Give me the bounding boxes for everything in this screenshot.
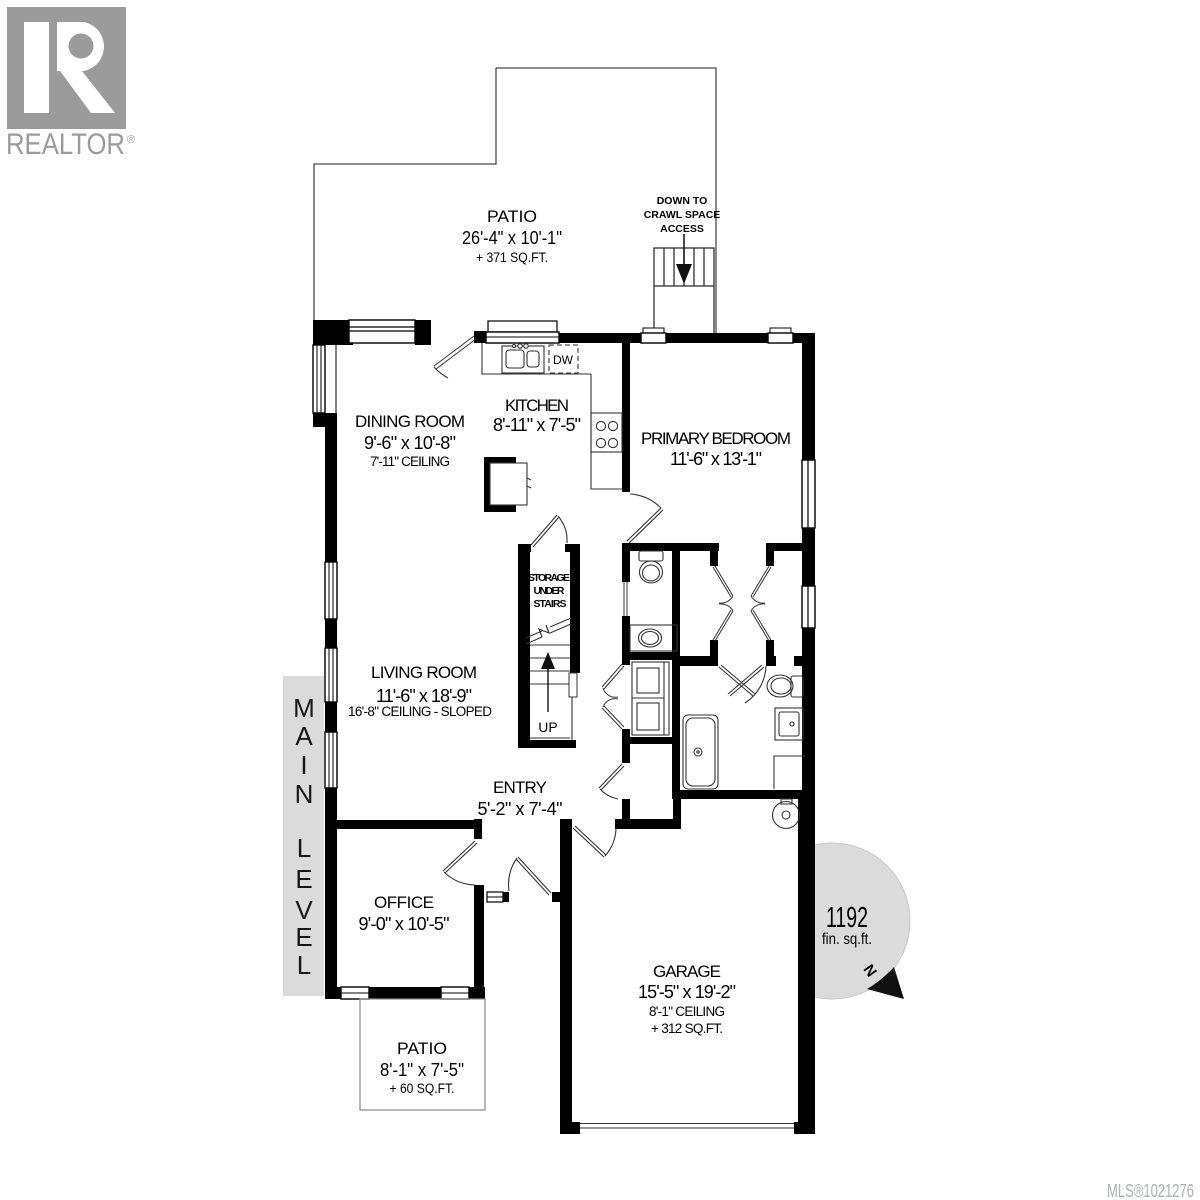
svg-text:DINING ROOM: DINING ROOM: [355, 412, 465, 431]
svg-text:11'-6" x 13'-1": 11'-6" x 13'-1": [670, 449, 762, 469]
svg-text:®: ®: [127, 134, 135, 146]
svg-text:PATIO: PATIO: [397, 1039, 447, 1058]
svg-text:+ 60 SQ.FT.: + 60 SQ.FT.: [390, 1081, 455, 1096]
svg-text:A: A: [295, 721, 313, 751]
svg-text:L: L: [297, 833, 311, 863]
svg-text:UP: UP: [538, 719, 557, 735]
svg-text:M: M: [293, 693, 315, 723]
svg-text:V: V: [295, 895, 313, 925]
svg-text:GARAGE: GARAGE: [653, 962, 721, 981]
svg-text:7'-11" CEILING: 7'-11" CEILING: [370, 454, 450, 469]
svg-text:CRAWL SPACE: CRAWL SPACE: [644, 209, 721, 221]
svg-text:9'-0" x 10'-5": 9'-0" x 10'-5": [359, 914, 450, 934]
svg-text:8'-1" x 7'-5": 8'-1" x 7'-5": [380, 1060, 464, 1080]
svg-text:DW: DW: [553, 353, 574, 367]
svg-text:DOWN TO: DOWN TO: [657, 195, 708, 207]
svg-text:LIVING ROOM: LIVING ROOM: [371, 663, 477, 682]
svg-text:STAIRS: STAIRS: [534, 598, 567, 610]
svg-text:26'-4" x 10'-1": 26'-4" x 10'-1": [462, 228, 562, 248]
svg-text:fin. sq.ft.: fin. sq.ft.: [822, 931, 872, 948]
svg-text:PRIMARY BEDROOM: PRIMARY BEDROOM: [641, 429, 791, 448]
svg-text:REALTOR: REALTOR: [6, 128, 125, 161]
svg-text:8'-1" CEILING: 8'-1" CEILING: [649, 1004, 725, 1019]
svg-text:ENTRY: ENTRY: [493, 778, 547, 797]
svg-text:KITCHEN: KITCHEN: [505, 396, 569, 415]
svg-text:UNDER: UNDER: [534, 585, 565, 597]
svg-text:OFFICE: OFFICE: [374, 893, 434, 912]
svg-text:1192: 1192: [826, 902, 868, 934]
svg-text:5'-2" x 7'-4": 5'-2" x 7'-4": [478, 799, 563, 819]
svg-text:11'-6" x 18'-9": 11'-6" x 18'-9": [376, 686, 472, 706]
svg-text:16'-8" CEILING - SLOPED: 16'-8" CEILING - SLOPED: [348, 704, 492, 719]
svg-text:9'-6" x 10'-8": 9'-6" x 10'-8": [364, 433, 456, 453]
svg-text:N: N: [295, 779, 314, 809]
svg-text:+ 371 SQ.FT.: + 371 SQ.FT.: [476, 250, 548, 265]
svg-text:E: E: [295, 864, 312, 894]
svg-text:E: E: [295, 922, 312, 952]
svg-text:MLS®1021276: MLS®1021276: [1107, 1181, 1194, 1200]
svg-text:I: I: [300, 750, 307, 780]
svg-text:8'-11" x 7'-5": 8'-11" x 7'-5": [493, 415, 581, 435]
svg-text:L: L: [297, 950, 311, 980]
svg-text:PATIO: PATIO: [487, 207, 537, 226]
svg-text:15'-5" x 19'-2": 15'-5" x 19'-2": [638, 982, 736, 1002]
svg-text:STORAGE: STORAGE: [528, 572, 570, 584]
svg-text:ACCESS: ACCESS: [660, 223, 704, 235]
svg-text:+ 312 SQ.FT.: + 312 SQ.FT.: [651, 1021, 723, 1036]
